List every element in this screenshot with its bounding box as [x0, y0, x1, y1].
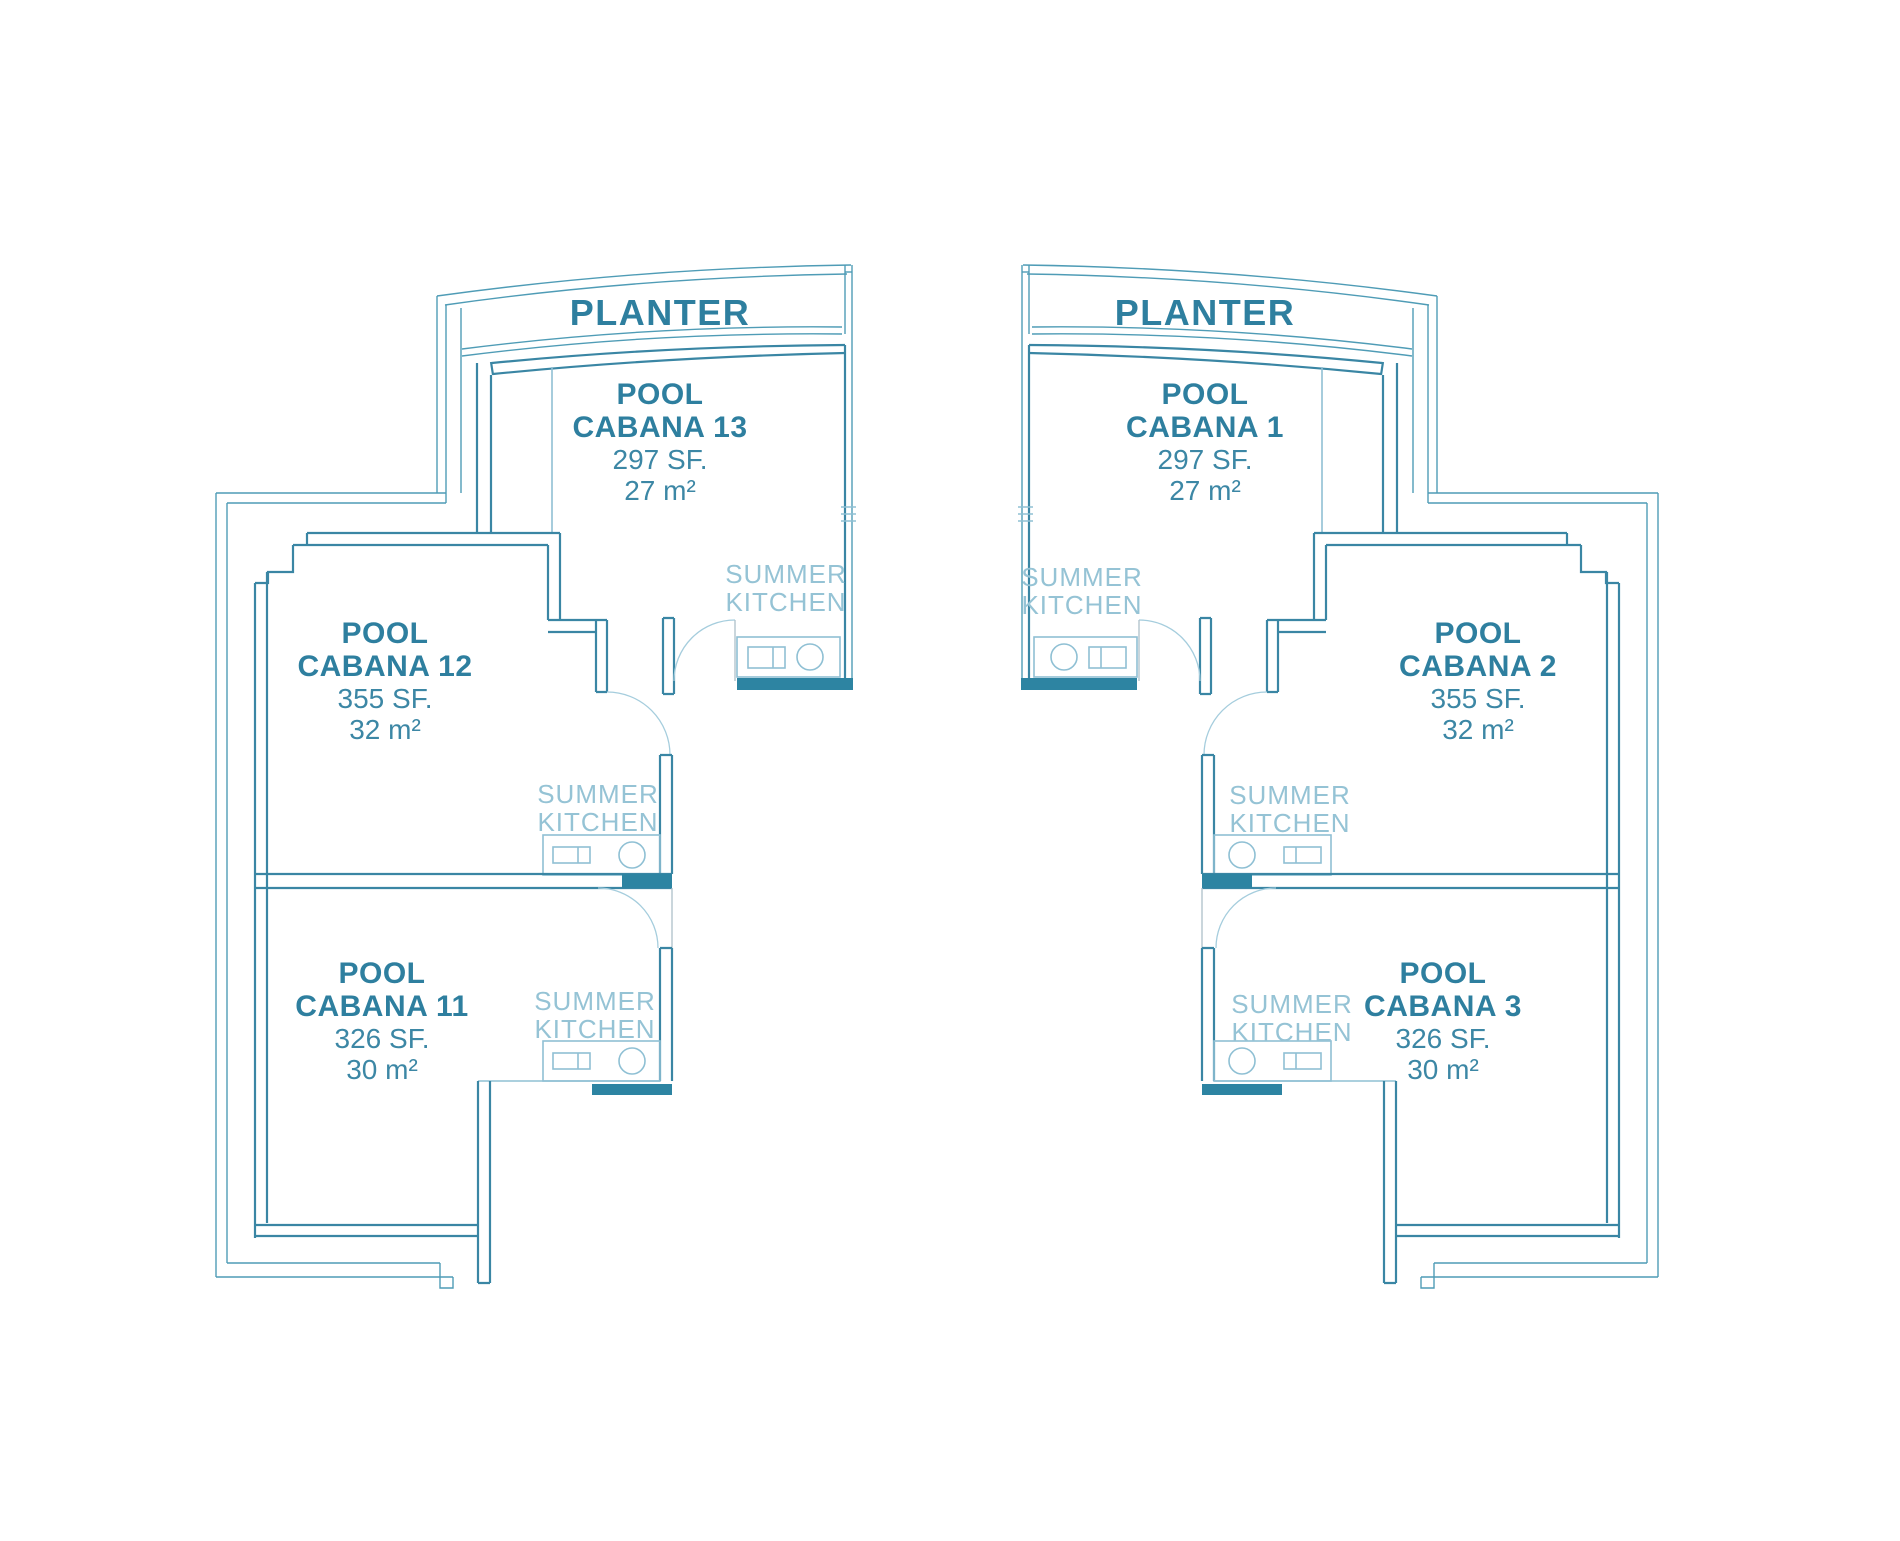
cabana-name-line2: CABANA 1 [1126, 411, 1284, 444]
cabana-11-label: POOL CABANA 11 326 SF. 30 m² [295, 957, 468, 1085]
right-wing [1018, 265, 1658, 1288]
cabana-1-label: POOL CABANA 1 297 SF. 27 m² [1126, 378, 1284, 506]
cabana-name-line1: POOL [1364, 957, 1522, 990]
cabana-name-line2: CABANA 13 [572, 411, 747, 444]
cabana-area-m2: 30 m² [1364, 1054, 1522, 1085]
summer-kitchen-line1: SUMMER [1021, 563, 1143, 591]
left-wing [216, 265, 856, 1288]
cabana-area-m2: 32 m² [1399, 714, 1557, 745]
cabana-3-label: POOL CABANA 3 326 SF. 30 m² [1364, 957, 1522, 1085]
cabana-12-label: POOL CABANA 12 355 SF. 32 m² [297, 617, 472, 745]
cabana-name-line1: POOL [297, 617, 472, 650]
cabana-area-sf: 297 SF. [1126, 444, 1284, 475]
summer-kitchen-label: SUMMER KITCHEN [1229, 781, 1351, 837]
summer-kitchen-label: SUMMER KITCHEN [725, 560, 847, 616]
cabana-area-m2: 27 m² [572, 475, 747, 506]
cabana-13-label: POOL CABANA 13 297 SF. 27 m² [572, 378, 747, 506]
cabana-area-sf: 326 SF. [295, 1023, 468, 1054]
cabana-area-sf: 355 SF. [297, 683, 472, 714]
cabana-name-line1: POOL [572, 378, 747, 411]
summer-kitchen-line2: KITCHEN [1021, 591, 1143, 619]
summer-kitchen-label: SUMMER KITCHEN [534, 987, 656, 1043]
summer-kitchen-line2: KITCHEN [725, 588, 847, 616]
summer-kitchen-label: SUMMER KITCHEN [537, 780, 659, 836]
summer-kitchen-line2: KITCHEN [1231, 1018, 1353, 1046]
summer-kitchen-label: SUMMER KITCHEN [1021, 563, 1143, 619]
cabana-area-sf: 326 SF. [1364, 1023, 1522, 1054]
planter-label: PLANTER [570, 292, 751, 334]
summer-kitchen-line1: SUMMER [534, 987, 656, 1015]
summer-kitchen-label: SUMMER KITCHEN [1231, 990, 1353, 1046]
cabana-area-sf: 297 SF. [572, 444, 747, 475]
summer-kitchen-line1: SUMMER [725, 560, 847, 588]
planter-label: PLANTER [1115, 292, 1296, 334]
cabana-name-line2: CABANA 11 [295, 990, 468, 1023]
cabana-area-m2: 27 m² [1126, 475, 1284, 506]
cabana-area-sf: 355 SF. [1399, 683, 1557, 714]
summer-kitchen-line1: SUMMER [537, 780, 659, 808]
cabana-2-label: POOL CABANA 2 355 SF. 32 m² [1399, 617, 1557, 745]
cabana-name-line1: POOL [1399, 617, 1557, 650]
cabana-name-line2: CABANA 3 [1364, 990, 1522, 1023]
summer-kitchen-line2: KITCHEN [534, 1015, 656, 1043]
cabana-name-line2: CABANA 12 [297, 650, 472, 683]
summer-kitchen-line1: SUMMER [1231, 990, 1353, 1018]
floorplan-page: PLANTER POOL CABANA 13 297 SF. 27 m² POO… [0, 0, 1900, 1541]
summer-kitchen-line2: KITCHEN [1229, 809, 1351, 837]
floor-plan-canvas [0, 0, 1900, 1541]
summer-kitchen-line1: SUMMER [1229, 781, 1351, 809]
cabana-area-m2: 32 m² [297, 714, 472, 745]
cabana-area-m2: 30 m² [295, 1054, 468, 1085]
summer-kitchen-line2: KITCHEN [537, 808, 659, 836]
cabana-name-line1: POOL [295, 957, 468, 990]
cabana-name-line1: POOL [1126, 378, 1284, 411]
cabana-name-line2: CABANA 2 [1399, 650, 1557, 683]
